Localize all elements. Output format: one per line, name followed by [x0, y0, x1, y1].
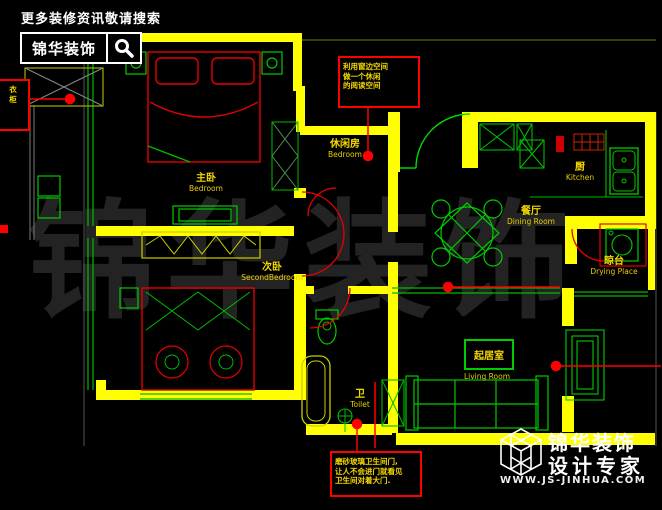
cad-floorplan-screenshot: 锦华装饰 — [0, 0, 662, 510]
kitchen-fixtures — [530, 130, 643, 261]
dining-table — [432, 200, 502, 266]
entry-door — [400, 114, 470, 168]
master-nightstands — [38, 52, 282, 224]
master-bed — [148, 52, 260, 162]
door-arcs — [302, 188, 350, 328]
bay-window — [566, 330, 604, 400]
leisure-wardrobe — [272, 122, 298, 190]
sofa — [406, 376, 548, 430]
brand-logo-text: 锦华装饰 — [22, 34, 106, 62]
magnifier-icon — [108, 34, 140, 62]
entry-cabinets — [480, 124, 544, 168]
second-bed — [120, 232, 260, 390]
washing-machine — [600, 224, 646, 266]
corner-closet — [25, 68, 103, 106]
floorplan-drawing — [0, 0, 662, 510]
brand-search-box: 锦华装饰 — [20, 32, 142, 64]
